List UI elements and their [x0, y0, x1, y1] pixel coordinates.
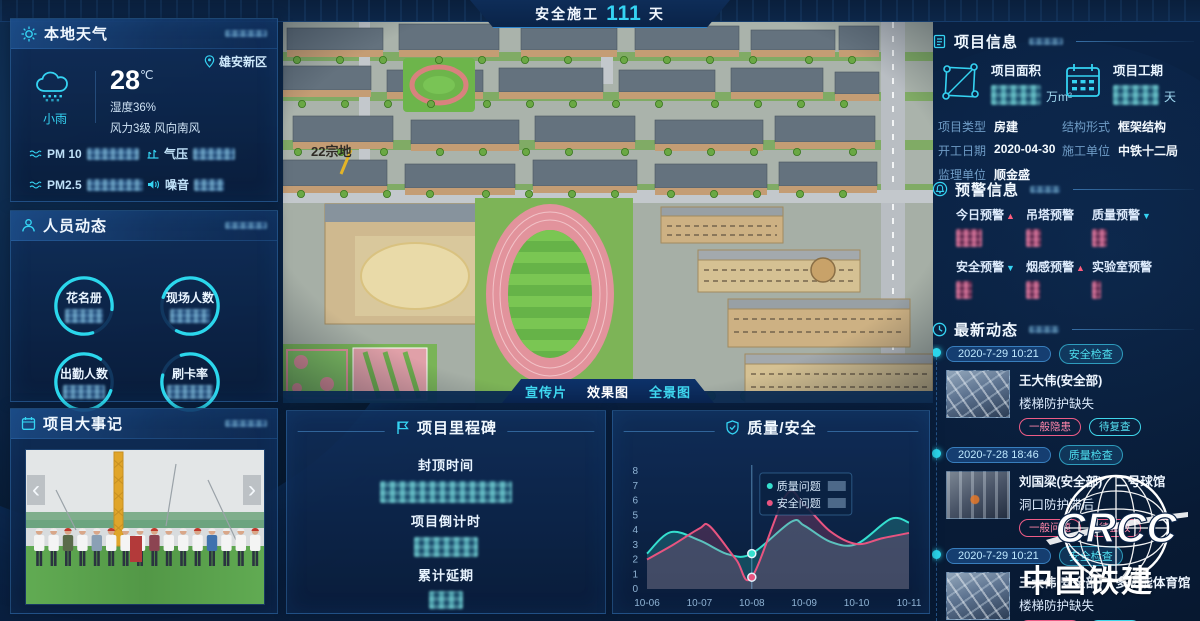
svg-text:3: 3: [632, 540, 638, 551]
ring-swipe-rate: 刷卡率: [157, 349, 223, 415]
timeline-dot-icon: [932, 348, 941, 357]
safety-days-unit: 天: [649, 4, 665, 24]
alert-today: 今日预警▲: [956, 206, 1026, 252]
milestone-events-panel: 项目大事记: [10, 408, 278, 614]
project-info-header: 项目信息: [932, 28, 1194, 54]
delay-value-masked: [429, 591, 463, 609]
update-entry[interactable]: 2020-7-28 18:46质量检查 刘国梁(安全部)二号球馆 洞口防护滞后 …: [932, 445, 1198, 537]
field-project-type: 项目类型房建: [938, 118, 1018, 135]
pm10-value-masked: [87, 148, 139, 160]
update-place: 二号球馆: [1115, 475, 1165, 489]
severity-badge: 一般隐患: [1019, 418, 1081, 436]
alert-quality-value-masked: [1092, 229, 1107, 247]
update-date: 2020-7-29 10:21: [946, 346, 1051, 362]
personnel-panel: 人员动态 花名册 现场人数 出勤人数 刷卡率: [10, 210, 278, 402]
weather-timestamp-masked: [225, 30, 267, 37]
dashboard: 安全施工 111 天 本地天气 雄安新区 小雨: [0, 0, 1200, 621]
alarm-bell-icon: [932, 181, 948, 197]
svg-text:10-10: 10-10: [844, 598, 870, 609]
info-stamp-masked: [1029, 38, 1063, 45]
alert-lab: 实验室预警: [1092, 258, 1162, 304]
svg-text:2: 2: [632, 555, 638, 566]
weather-panel: 本地天气 雄安新区 小雨 28℃ 湿度36% 风力3级 风向南风: [10, 18, 278, 202]
alert-smoke: 烟感预警▲: [1026, 258, 1096, 304]
update-type-badge: 安全检查: [1059, 546, 1123, 566]
dust-icon: [29, 149, 42, 159]
divider: [95, 71, 96, 123]
svg-text:1: 1: [632, 569, 638, 580]
alert-safety-value-masked: [956, 281, 972, 299]
humidity: 湿度36%: [110, 99, 200, 115]
calendar-icon: [21, 416, 36, 431]
clock-icon: [932, 322, 947, 337]
sun-gear-icon: [21, 26, 37, 42]
weather-title: 本地天气: [44, 23, 108, 44]
metric-pressure: 气压: [147, 145, 265, 162]
project-info-section: 项目信息: [932, 28, 1194, 54]
alert-crane-value-masked: [1026, 229, 1041, 247]
update-type-badge: 安全检查: [1059, 344, 1123, 364]
weather-condition-label: 小雨: [29, 110, 81, 127]
field-structure: 结构形式框架结构: [1062, 118, 1166, 135]
document-icon: [932, 34, 947, 49]
updates-header: 最新动态: [932, 316, 1194, 342]
severity-badge: 一般问题: [1019, 519, 1081, 537]
svg-text:6: 6: [632, 496, 638, 507]
update-date: 2020-7-29 10:21: [946, 548, 1051, 564]
location-pin-icon: [204, 55, 215, 68]
project-info-title: 项目信息: [954, 31, 1018, 52]
personnel-header: 人员动态: [11, 211, 277, 241]
event-photo-slide[interactable]: [25, 449, 265, 605]
svg-text:质量问题: 质量问题: [777, 480, 821, 493]
alert-today-value-masked: [956, 229, 982, 247]
milestone-header: 项目里程碑: [301, 411, 591, 443]
noise-speaker-icon: [147, 179, 160, 190]
milestone-countdown: 项目倒计时: [287, 511, 605, 562]
update-photo: [946, 370, 1010, 418]
svg-text:10-07: 10-07: [687, 598, 713, 609]
updates-stamp-masked: [1029, 326, 1059, 333]
weather-condition: 小雨: [29, 67, 81, 136]
pressure-value-masked: [193, 148, 235, 160]
update-entry[interactable]: 2020-7-29 10:21安全检查 王大伟(安全部) 楼梯防护缺失 一般隐患…: [932, 344, 1198, 436]
svg-text:10-06: 10-06: [634, 598, 660, 609]
header-wing: [500, 423, 595, 432]
personnel-timestamp-masked: [225, 222, 267, 229]
svg-text:安全问题: 安全问题: [777, 496, 821, 510]
trend-arrow: ▼: [1006, 263, 1015, 273]
alerts-stamp-masked: [1030, 186, 1060, 193]
update-issue: 洞口防护滞后: [1019, 494, 1165, 513]
header-line: [1073, 189, 1194, 190]
update-person: 王大伟(安全部): [1019, 576, 1102, 590]
field-contractor: 施工单位中铁十二局: [1062, 142, 1178, 159]
quality-safety-panel: 质量/安全 01234567810-0610-0710-0810-0910-10…: [612, 410, 930, 614]
svg-text:10-09: 10-09: [791, 598, 817, 609]
alert-quality: 质量预警▼: [1092, 206, 1162, 252]
view-switcher: 宣传片 效果图 全景图: [502, 379, 714, 403]
countdown-value-masked: [414, 537, 478, 557]
alert-safety: 安全预警▼: [956, 258, 1026, 304]
status-badge: 待复查: [1089, 418, 1141, 436]
duration-value-masked: [1113, 85, 1159, 105]
site-3d-view: 22宗地 宣传片 效果图 全景图: [283, 22, 933, 403]
events-title: 项目大事记: [43, 413, 123, 434]
alerts-header: 预警信息: [932, 176, 1194, 202]
svg-text:8: 8: [632, 466, 638, 477]
milestone-title: 项目里程碑: [417, 417, 497, 438]
metric-noise: 噪音: [147, 176, 265, 193]
attendance-value-masked: [63, 385, 105, 399]
alert-smoke-value-masked: [1026, 281, 1040, 299]
svg-text:7: 7: [632, 481, 638, 492]
ring-attendance: 出勤人数: [51, 349, 117, 415]
events-header: 项目大事记: [11, 409, 277, 439]
safety-days-count: 111: [606, 2, 642, 26]
header-line: [1072, 329, 1194, 330]
weather-metrics: PM 10 气压 PM2.5 噪音: [29, 145, 265, 193]
ring-onsite: 现场人数: [157, 273, 223, 339]
timeline-dot-icon: [932, 449, 941, 458]
svg-text:10-11: 10-11: [897, 598, 922, 609]
quality-safety-chart: 01234567810-0610-0710-0810-0910-1010-11质…: [613, 419, 931, 619]
region-label: 雄安新区: [219, 53, 267, 70]
dust-icon: [29, 180, 42, 190]
stat-project-duration: 项目工期 天: [1062, 60, 1176, 105]
timeline-dot-icon: [932, 550, 941, 559]
svg-text:5: 5: [632, 510, 638, 521]
alert-crane: 吊塔预警: [1026, 206, 1096, 252]
header-line: [1076, 41, 1194, 42]
svg-text:4: 4: [632, 525, 638, 536]
update-place: 多功能体育馆: [1115, 576, 1190, 590]
metric-pm25: PM2.5: [29, 176, 147, 193]
update-person: 刘国梁(安全部): [1019, 475, 1102, 489]
noise-value-masked: [194, 179, 224, 191]
region-badge: 雄安新区: [204, 53, 267, 70]
alerts-section: 预警信息: [932, 176, 1194, 202]
update-date: 2020-7-28 18:46: [946, 447, 1051, 463]
alert-lab-value-masked: [1092, 281, 1101, 299]
svg-text:10-08: 10-08: [739, 598, 765, 609]
updates-section: 最新动态: [932, 316, 1194, 342]
pm25-value-masked: [87, 179, 143, 191]
update-type-badge: 质量检查: [1059, 445, 1123, 465]
onsite-value-masked: [170, 309, 210, 323]
ring-roster: 花名册: [51, 273, 117, 339]
milestone-topping-time: 封顶时间: [287, 455, 605, 508]
area-value-masked: [991, 85, 1041, 105]
temperature: 28℃: [110, 67, 200, 94]
trend-arrow: ▲: [1076, 263, 1085, 273]
pressure-icon: [147, 148, 159, 159]
milestone-panel: 项目里程碑 封顶时间 项目倒计时 累计延期: [286, 410, 606, 614]
weather-header: 本地天气: [11, 19, 277, 49]
header-wing: [297, 423, 392, 432]
topping-time-value-masked: [380, 481, 512, 503]
wind: 风力3级 风向南风: [110, 120, 200, 136]
swipe-rate-value-masked: [167, 385, 213, 399]
rain-cloud-icon: [33, 67, 77, 103]
calendar-icon: [1062, 60, 1104, 105]
updates-list: 2020-7-29 10:21安全检查 王大伟(安全部) 楼梯防护缺失 一般隐患…: [932, 344, 1198, 621]
events-timestamp-masked: [225, 420, 267, 427]
person-icon: [21, 218, 36, 233]
safety-days-label: 安全施工: [535, 4, 599, 24]
weather-readings: 28℃ 湿度36% 风力3级 风向南风: [110, 67, 200, 136]
milestone-delay: 累计延期: [287, 565, 605, 614]
stat-project-area: 项目面积 万m²: [938, 60, 1072, 105]
safety-days-banner: 安全施工 111 天: [470, 0, 730, 28]
view-button-promo[interactable]: 宣传片: [525, 382, 567, 401]
svg-text:0: 0: [632, 584, 638, 595]
updates-title: 最新动态: [954, 319, 1018, 340]
carousel-prev-button[interactable]: ‹: [27, 475, 45, 505]
view-button-panorama[interactable]: 全景图: [649, 382, 691, 401]
update-photo: [946, 471, 1010, 519]
update-photo: [946, 572, 1010, 620]
status-badge: 待整改: [1089, 519, 1141, 537]
update-person: 王大伟(安全部): [1019, 374, 1102, 388]
metric-pm10: PM 10: [29, 145, 147, 162]
roster-value-masked: [65, 309, 103, 323]
alerts-title: 预警信息: [955, 179, 1019, 200]
update-issue: 楼梯防护缺失: [1019, 393, 1141, 412]
view-button-render[interactable]: 效果图: [587, 382, 629, 401]
update-issue: 楼梯防护缺失: [1019, 595, 1190, 614]
trend-arrow: ▼: [1142, 211, 1151, 221]
flag-icon: [395, 420, 410, 435]
personnel-title: 人员动态: [43, 215, 107, 236]
weather-current: 小雨 28℃ 湿度36% 风力3级 风向南风: [29, 67, 200, 136]
area-measure-icon: [938, 60, 982, 105]
field-start-date: 开工日期2020-04-30: [938, 142, 1055, 159]
carousel-next-button[interactable]: ›: [243, 475, 261, 505]
crane: [114, 452, 123, 546]
trend-arrow: ▲: [1006, 211, 1015, 221]
update-entry[interactable]: 2020-7-29 10:21安全检查 王大伟(安全部)多功能体育馆 楼梯防护缺…: [932, 546, 1198, 621]
